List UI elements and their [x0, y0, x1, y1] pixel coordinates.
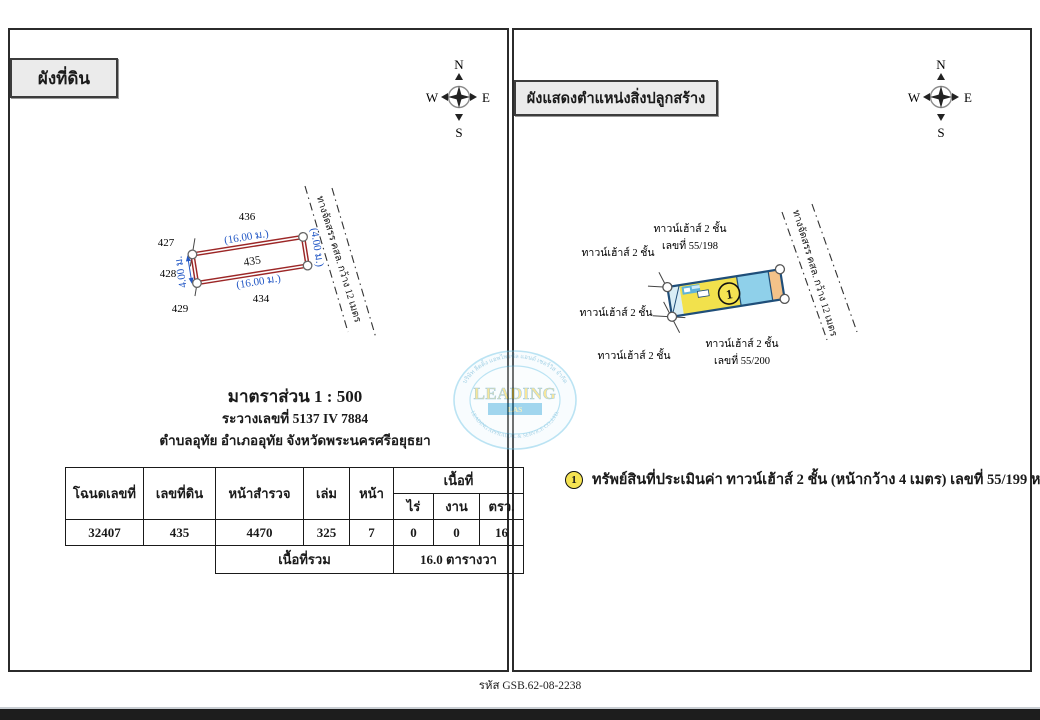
corner-marker — [779, 294, 789, 304]
parcel-boundary-group: 435 (16.00 ม.) (16.00 ม.) (4.00 ม.) 4.00… — [170, 219, 327, 301]
ngan-value: 0 — [434, 520, 480, 546]
col-rai: ไร่ — [394, 494, 434, 520]
compass-s-label: S — [937, 125, 944, 140]
townhouse-plot-group: 1 — [646, 253, 792, 337]
compass-arrow-north — [455, 73, 463, 80]
compass-arrow-east — [952, 93, 959, 101]
corner-marker — [298, 232, 308, 242]
appraisal-legend: 1 ทรัพย์สินที่ประเมินค่า ทาวน์เฮ้าส์ 2 ช… — [565, 468, 1040, 491]
scale-location-block: มาตราส่วน 1 : 500 ระวางเลขที่ 5137 IV 78… — [110, 386, 480, 452]
neighbor-label-top-line2: เลขที่ 55/198 — [662, 238, 718, 252]
location-line: ตำบลอุทัย อำเภออุทัย จังหวัดพระนครศรีอยุ… — [110, 430, 480, 452]
compass-n-label: N — [936, 57, 946, 72]
compass-w-label: W — [426, 90, 439, 105]
compass-arrow-south — [455, 114, 463, 121]
compass-n-label: N — [454, 57, 464, 72]
corner-marker — [303, 261, 313, 271]
survey-page-value: 4470 — [216, 520, 304, 546]
compass-s-label: S — [455, 125, 462, 140]
sheet-number: ระวางเลขที่ 5137 IV 7884 — [110, 408, 480, 430]
company-watermark-stamp: บริษัท ลีดดิ้ง แอพไพรซัล แอนด์ เซอร์วิส … — [448, 346, 582, 454]
scan-edge-strip — [0, 707, 1040, 720]
left-panel-title-box: ผังที่ดิน — [10, 58, 118, 98]
interior-detail — [697, 290, 709, 298]
col-area-group: เนื้อที่ — [394, 468, 524, 494]
total-area-value: 16.0 ตารางวา — [394, 546, 524, 574]
sq-wah-value: 16 — [480, 520, 524, 546]
col-page: หน้า — [350, 468, 394, 520]
corner-marker — [192, 278, 202, 288]
compass-e-label: E — [964, 90, 972, 105]
parcel-no-value: 435 — [144, 520, 216, 546]
neighbor-label-left-mid: ทาวน์เฮ้าส์ 2 ชั้น — [580, 305, 653, 319]
neighbor-parcel-bottom: 434 — [253, 293, 270, 305]
map-scale: มาตราส่วน 1 : 500 — [110, 386, 480, 408]
road-label: ทางจัดสรร คสล. กว้าง 12 เมตร — [790, 208, 840, 338]
stamp-brand-name: LEADING — [474, 384, 557, 403]
col-volume: เล่ม — [304, 468, 350, 520]
compass-e-label: E — [482, 90, 490, 105]
neighbor-label-left-top: ทาวน์เฮ้าส์ 2 ชั้น — [582, 245, 655, 259]
right-panel-title-box: ผังแสดงตำแหน่งสิ่งปลูกสร้าง — [514, 80, 718, 116]
compass-arrow-south — [937, 114, 945, 121]
land-plot-diagram: ทางจัดสรร คสล. กว้าง 12 เมตร 436 427 428… — [140, 180, 460, 350]
total-area-label: เนื้อที่รวม — [216, 546, 394, 574]
col-survey-page: หน้าสำรวจ — [216, 468, 304, 520]
neighbor-label-bottom-left: ทาวน์เฮ้าส์ 2 ชั้น — [598, 348, 671, 362]
col-ngan: งาน — [434, 494, 480, 520]
neighbor-label-bottom-line2: เลขที่ 55/200 — [714, 353, 770, 367]
col-parcel-no: เลขที่ดิน — [144, 468, 216, 520]
col-sq-wah: ตรว. — [480, 494, 524, 520]
legend-marker-number: 1 — [571, 474, 577, 486]
page-value: 7 — [350, 520, 394, 546]
left-panel-title: ผังที่ดิน — [38, 65, 90, 92]
document-code: รหัส GSB.62-08-2238 — [430, 677, 630, 695]
neighbor-parcel-top: 436 — [239, 211, 256, 223]
neighbor-parcel-left-top: 427 — [158, 237, 175, 249]
table-spacer — [66, 546, 216, 574]
legend-text: ทรัพย์สินที่ประเมินค่า ทาวน์เฮ้าส์ 2 ชั้… — [592, 468, 1040, 491]
neighbor-label-bottom-line1: ทาวน์เฮ้าส์ 2 ชั้น — [706, 336, 779, 350]
compass-rose-right: N S W E — [903, 53, 979, 141]
corner-marker — [188, 250, 198, 260]
deed-no-value: 32407 — [66, 520, 144, 546]
compass-arrow-east — [470, 93, 477, 101]
volume-value: 325 — [304, 520, 350, 546]
corner-marker — [775, 264, 785, 274]
corner-marker — [662, 282, 672, 292]
compass-star-horizontal — [930, 94, 952, 100]
compass-arrow-west — [923, 93, 930, 101]
compass-arrow-north — [937, 73, 945, 80]
legend-marker-circle: 1 — [565, 471, 583, 489]
compass-rose-left: N S W E — [421, 53, 497, 141]
stamp-bar-text: LAS — [508, 405, 523, 414]
col-deed-no: โฉนดเลขที่ — [66, 468, 144, 520]
table-total-row: เนื้อที่รวม 16.0 ตารางวา — [66, 546, 524, 574]
building-site-diagram: ทางจัดสรร คสล. กว้าง 12 เมตร ทาวน์เฮ้าส์… — [560, 190, 900, 395]
right-panel-title: ผังแสดงตำแหน่งสิ่งปลูกสร้าง — [527, 87, 705, 110]
neighbor-label-top-line1: ทาวน์เฮ้าส์ 2 ชั้น — [654, 221, 727, 235]
corner-marker — [667, 312, 677, 322]
compass-arrow-west — [441, 93, 448, 101]
deed-table: โฉนดเลขที่ เลขที่ดิน หน้าสำรวจ เล่ม หน้า… — [65, 467, 524, 574]
compass-w-label: W — [908, 90, 921, 105]
rai-value: 0 — [394, 520, 434, 546]
table-row: 32407 435 4470 325 7 0 0 16 — [66, 520, 524, 546]
neighbor-parcel-left-bottom: 429 — [172, 303, 189, 315]
compass-star-horizontal — [448, 94, 470, 100]
